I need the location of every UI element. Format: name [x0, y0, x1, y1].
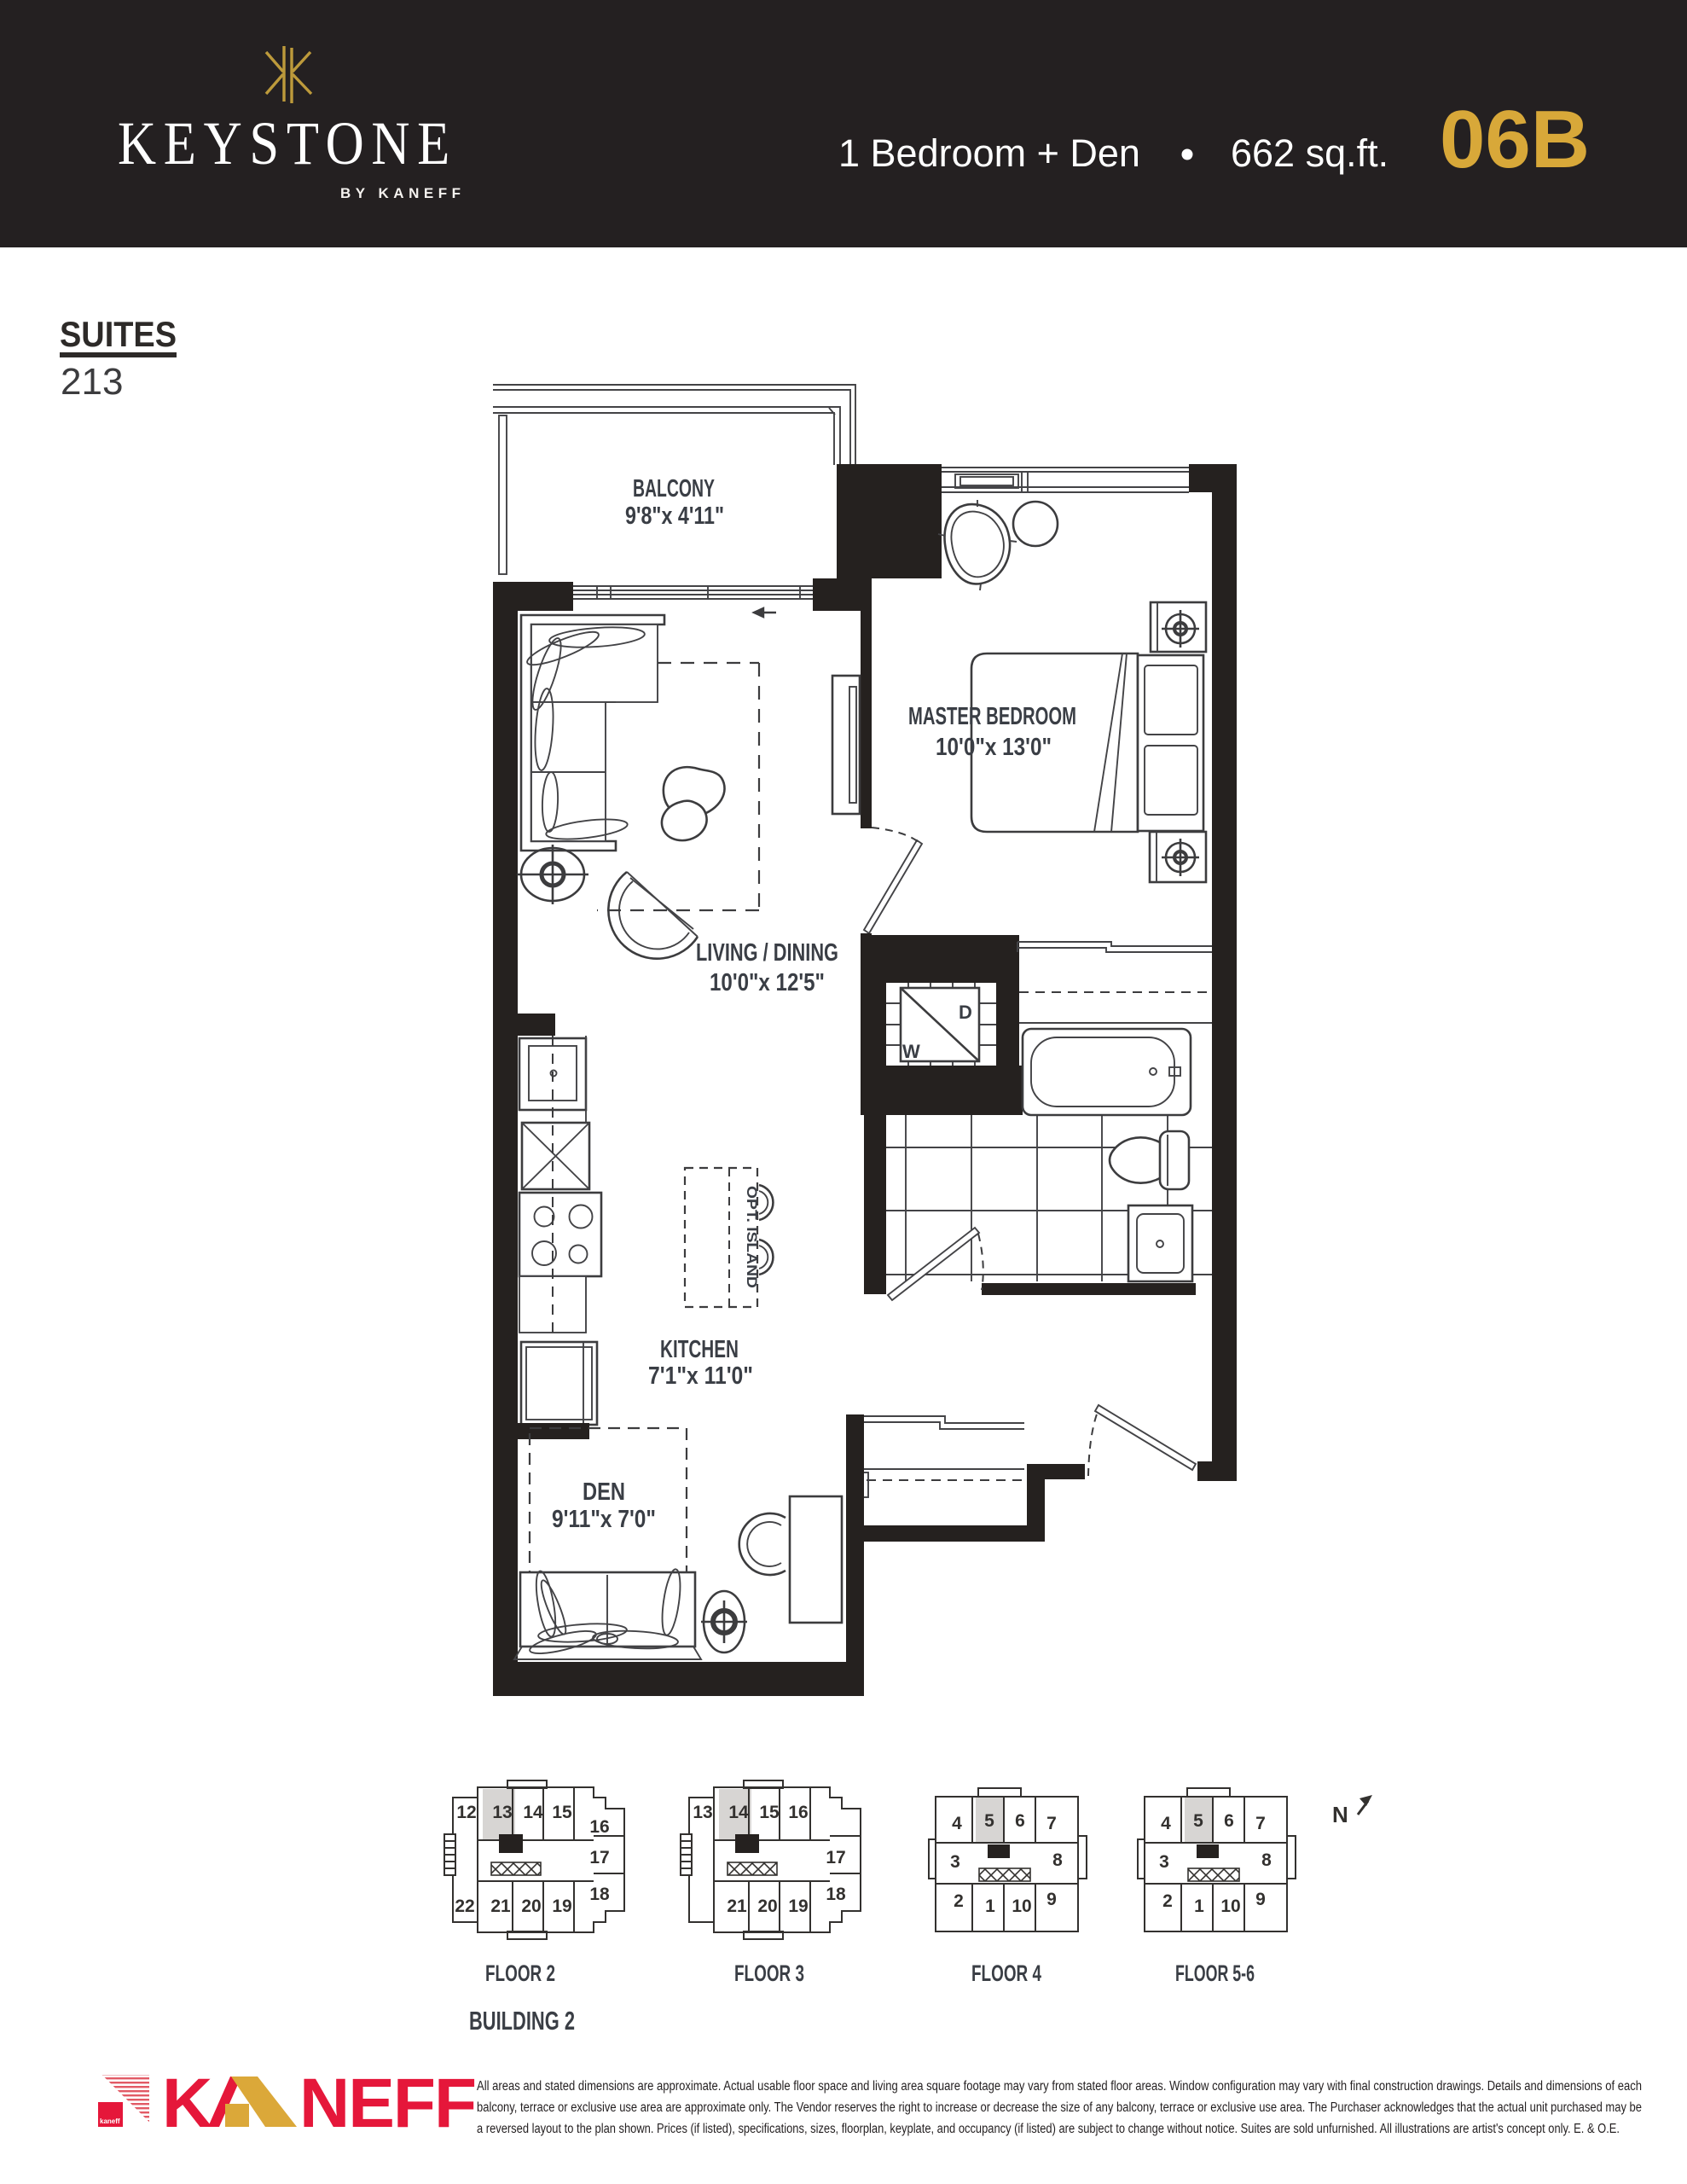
svg-text:All areas and stated dimension: All areas and stated dimensions are appr…: [477, 2079, 1642, 2094]
svg-text:LIVING / DINING: LIVING / DINING: [696, 939, 838, 967]
svg-text:10: 10: [1012, 1896, 1031, 1916]
svg-text:18: 18: [589, 1885, 610, 1904]
svg-text:BALCONY: BALCONY: [633, 475, 715, 502]
svg-text:balcony, terrace or exclusive: balcony, terrace or exclusive use area a…: [477, 2100, 1642, 2115]
svg-text:a reversed layout to the plan: a reversed layout to the plan shown. Pri…: [477, 2122, 1620, 2136]
svg-text:7: 7: [1046, 1814, 1057, 1833]
svg-text:FLOOR 2: FLOOR 2: [485, 1960, 555, 1986]
svg-text:10: 10: [1220, 1896, 1240, 1916]
svg-text:6: 6: [1224, 1811, 1234, 1831]
svg-text:3: 3: [950, 1852, 960, 1872]
svg-text:KEYSTONE: KEYSTONE: [118, 109, 457, 177]
svg-text:W: W: [902, 1041, 920, 1062]
svg-text:18: 18: [826, 1885, 846, 1904]
svg-text:OPT. ISLAND: OPT. ISLAND: [744, 1186, 760, 1288]
svg-text:14: 14: [728, 1803, 749, 1822]
svg-text:1: 1: [1194, 1896, 1204, 1916]
svg-text:17: 17: [826, 1848, 845, 1867]
svg-text:13: 13: [693, 1803, 712, 1822]
svg-text:FLOOR 4: FLOOR 4: [971, 1960, 1041, 1986]
svg-text:BUILDING 2: BUILDING 2: [469, 2006, 575, 2036]
svg-text:NEFF: NEFF: [299, 2065, 475, 2142]
svg-text:15: 15: [552, 1803, 572, 1822]
svg-text:FLOOR 5-6: FLOOR 5-6: [1175, 1960, 1255, 1986]
svg-text:21: 21: [727, 1896, 747, 1916]
svg-text:06B: 06B: [1440, 94, 1590, 185]
svg-text:13: 13: [492, 1803, 512, 1822]
svg-text:9'11"x 7'0": 9'11"x 7'0": [552, 1506, 656, 1533]
svg-text:9'8"x 4'11": 9'8"x 4'11": [625, 502, 724, 530]
svg-text:9: 9: [1046, 1890, 1057, 1909]
svg-text:19: 19: [552, 1896, 571, 1916]
svg-text:16: 16: [589, 1817, 609, 1837]
svg-text:9: 9: [1255, 1890, 1266, 1909]
svg-text:662 sq.ft.: 662 sq.ft.: [1231, 131, 1388, 175]
svg-text:kaneff: kaneff: [100, 2117, 120, 2125]
svg-text:20: 20: [521, 1896, 541, 1916]
svg-text:20: 20: [757, 1896, 777, 1916]
svg-text:2: 2: [1162, 1891, 1173, 1911]
svg-text:12: 12: [456, 1803, 476, 1822]
svg-text:17: 17: [589, 1848, 609, 1867]
svg-text:15: 15: [759, 1803, 780, 1822]
svg-text:19: 19: [788, 1896, 808, 1916]
svg-text:1: 1: [985, 1896, 995, 1916]
svg-text:213: 213: [61, 361, 123, 403]
svg-text:FLOOR 3: FLOOR 3: [734, 1960, 804, 1986]
svg-text:D: D: [959, 1002, 972, 1023]
svg-text:5: 5: [984, 1811, 994, 1831]
svg-text:N: N: [1332, 1802, 1348, 1827]
svg-text:BY KANEFF: BY KANEFF: [340, 185, 465, 201]
svg-text:DEN: DEN: [583, 1478, 625, 1506]
svg-text:21: 21: [490, 1896, 511, 1916]
svg-text:7'1"x 11'0": 7'1"x 11'0": [648, 1362, 753, 1390]
svg-text:4: 4: [952, 1814, 962, 1833]
svg-text:K: K: [162, 2065, 212, 2142]
svg-text:8: 8: [1052, 1850, 1063, 1870]
svg-text:8: 8: [1261, 1850, 1272, 1870]
svg-text:3: 3: [1159, 1852, 1169, 1872]
svg-text:16: 16: [788, 1803, 808, 1822]
svg-text:22: 22: [455, 1896, 474, 1916]
svg-text:10'0"x 12'5": 10'0"x 12'5": [710, 969, 825, 996]
svg-text:6: 6: [1015, 1811, 1025, 1831]
svg-text:KITCHEN: KITCHEN: [660, 1336, 739, 1363]
svg-text:4: 4: [1161, 1814, 1171, 1833]
svg-text:7: 7: [1255, 1814, 1266, 1833]
svg-text:14: 14: [523, 1803, 543, 1822]
svg-text:MASTER BEDROOM: MASTER BEDROOM: [908, 703, 1076, 730]
svg-text:SUITES: SUITES: [60, 314, 177, 354]
svg-text:2: 2: [954, 1891, 964, 1911]
svg-text:1 Bedroom + Den: 1 Bedroom + Den: [838, 131, 1140, 175]
svg-text:5: 5: [1193, 1811, 1203, 1831]
svg-text:10'0"x 13'0": 10'0"x 13'0": [936, 734, 1052, 761]
